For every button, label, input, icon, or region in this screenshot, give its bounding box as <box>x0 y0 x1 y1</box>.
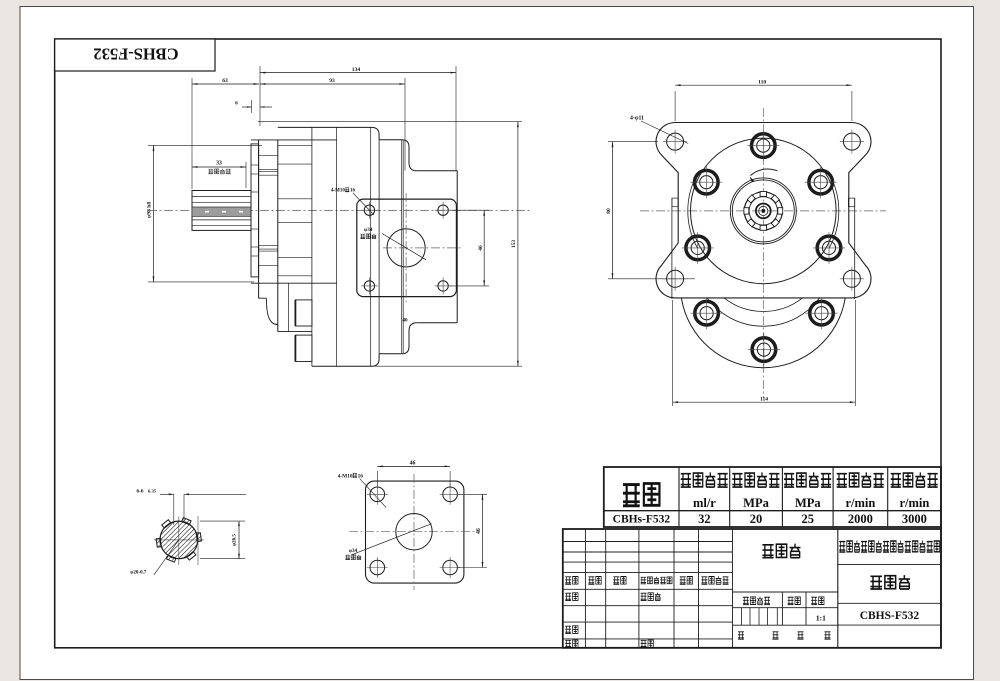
svg-text:33: 33 <box>216 161 222 167</box>
svg-text:110: 110 <box>758 79 766 85</box>
svg-text:134: 134 <box>352 67 361 73</box>
svg-text:2000: 2000 <box>848 512 873 526</box>
svg-text:φ26.5: φ26.5 <box>233 534 238 546</box>
svg-text:114: 114 <box>760 396 768 402</box>
svg-text:4-M10: 4-M10 <box>338 473 353 479</box>
svg-text:80: 80 <box>606 208 612 214</box>
svg-text:4-M10: 4-M10 <box>331 189 345 194</box>
svg-text:40: 40 <box>402 318 408 324</box>
svg-text:CBHS-F532: CBHS-F532 <box>93 45 178 64</box>
svg-text:32: 32 <box>698 512 711 526</box>
svg-text:6: 6 <box>235 101 238 107</box>
svg-text:6-6: 6-6 <box>137 489 144 495</box>
svg-text:MPa: MPa <box>743 496 769 510</box>
svg-text:r/min: r/min <box>845 496 875 510</box>
svg-text:20: 20 <box>750 512 763 526</box>
svg-text:153: 153 <box>511 240 517 248</box>
svg-text:φ20-0.7: φ20-0.7 <box>130 571 147 576</box>
svg-text:ml/r: ml/r <box>693 496 716 510</box>
svg-text:46: 46 <box>478 245 484 251</box>
svg-text:16: 16 <box>358 473 364 479</box>
svg-text:φ34: φ34 <box>364 227 373 233</box>
svg-text:1:1: 1:1 <box>816 613 826 622</box>
svg-text:46: 46 <box>410 460 416 466</box>
svg-text:16: 16 <box>350 189 356 194</box>
svg-text:φ98 h8: φ98 h8 <box>147 202 153 219</box>
svg-text:4-φ11: 4-φ11 <box>630 116 644 122</box>
svg-text:46: 46 <box>476 528 482 534</box>
svg-text:r/min: r/min <box>899 496 929 510</box>
svg-text:25: 25 <box>802 512 815 526</box>
svg-text:3000: 3000 <box>902 512 927 526</box>
svg-text:φ34: φ34 <box>349 548 358 554</box>
svg-text:CBHS-F532: CBHS-F532 <box>860 610 920 622</box>
svg-text:93: 93 <box>329 78 335 84</box>
svg-text:63: 63 <box>222 78 228 84</box>
svg-text:CBHs-F532: CBHs-F532 <box>613 514 671 526</box>
svg-text:MPa: MPa <box>795 496 821 510</box>
svg-text:6.35: 6.35 <box>148 489 157 494</box>
